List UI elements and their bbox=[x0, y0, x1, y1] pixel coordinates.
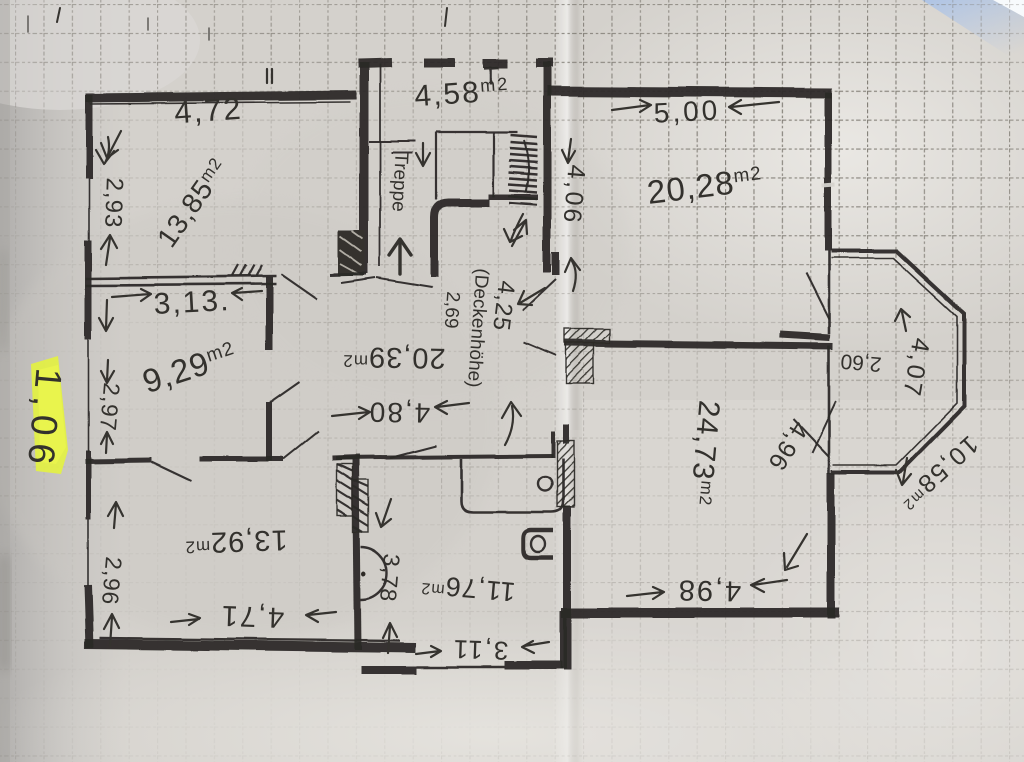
svg-text:3,78: 3,78 bbox=[375, 553, 405, 604]
svg-text:3,11: 3,11 bbox=[451, 634, 509, 666]
svg-text:4,06: 4,06 bbox=[557, 164, 590, 227]
svg-text:4,98: 4,98 bbox=[676, 573, 741, 606]
svg-text:2,93: 2,93 bbox=[99, 177, 128, 229]
svg-text:Treppe: Treppe bbox=[387, 152, 411, 213]
svg-text:4,80: 4,80 bbox=[367, 396, 430, 428]
svg-text:2,69: 2,69 bbox=[440, 291, 464, 329]
svg-text:2,96: 2,96 bbox=[97, 556, 127, 607]
svg-text:2,97: 2,97 bbox=[95, 382, 125, 433]
svg-text:5,00: 5,00 bbox=[653, 94, 721, 128]
svg-text:3,13.: 3,13. bbox=[153, 284, 231, 321]
svg-text:4,72: 4,72 bbox=[173, 91, 244, 131]
svg-text:4,71: 4,71 bbox=[219, 599, 285, 633]
svg-text:2,60: 2,60 bbox=[840, 349, 883, 375]
